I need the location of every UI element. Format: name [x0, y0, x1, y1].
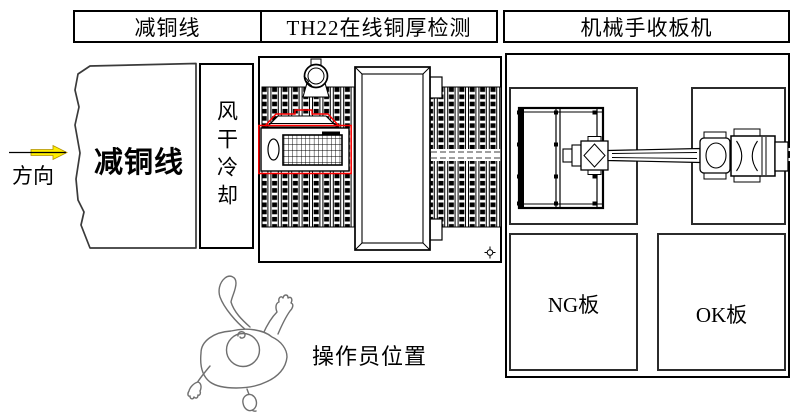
operator-raised-arm [219, 276, 250, 330]
operator-figure [178, 262, 308, 412]
position-marker-icon [485, 247, 496, 259]
header-cell-th22-detection: TH22在线铜厚检测 [262, 10, 498, 43]
header-cell-copper-line: 减铜线 [73, 10, 262, 43]
robot-arm-drawing [505, 53, 790, 378]
direction-label: 方向 [12, 160, 54, 190]
production-line-diagram: 减铜线 TH22在线铜厚检测 机械手收板机 方向 减铜线 风干冷却 [0, 0, 800, 412]
operator-foot [243, 394, 257, 410]
robot-arm [563, 129, 790, 182]
hoist-ring-icon [303, 59, 329, 97]
operator-position-label: 操作员位置 [312, 339, 427, 371]
air-dry-cooling-box: 风干冷却 [199, 63, 254, 249]
air-dry-cooling-label: 风干冷却 [212, 100, 242, 212]
header-cell-robot-collector: 机械手收板机 [503, 10, 790, 43]
operator-right-hand [263, 295, 293, 334]
center-panel [355, 67, 442, 250]
operator-left-hand [188, 382, 201, 399]
th22-machine-drawing [258, 56, 502, 263]
roller-conveyor-right [430, 87, 501, 227]
copper-line-label: 减铜线 [86, 139, 192, 181]
